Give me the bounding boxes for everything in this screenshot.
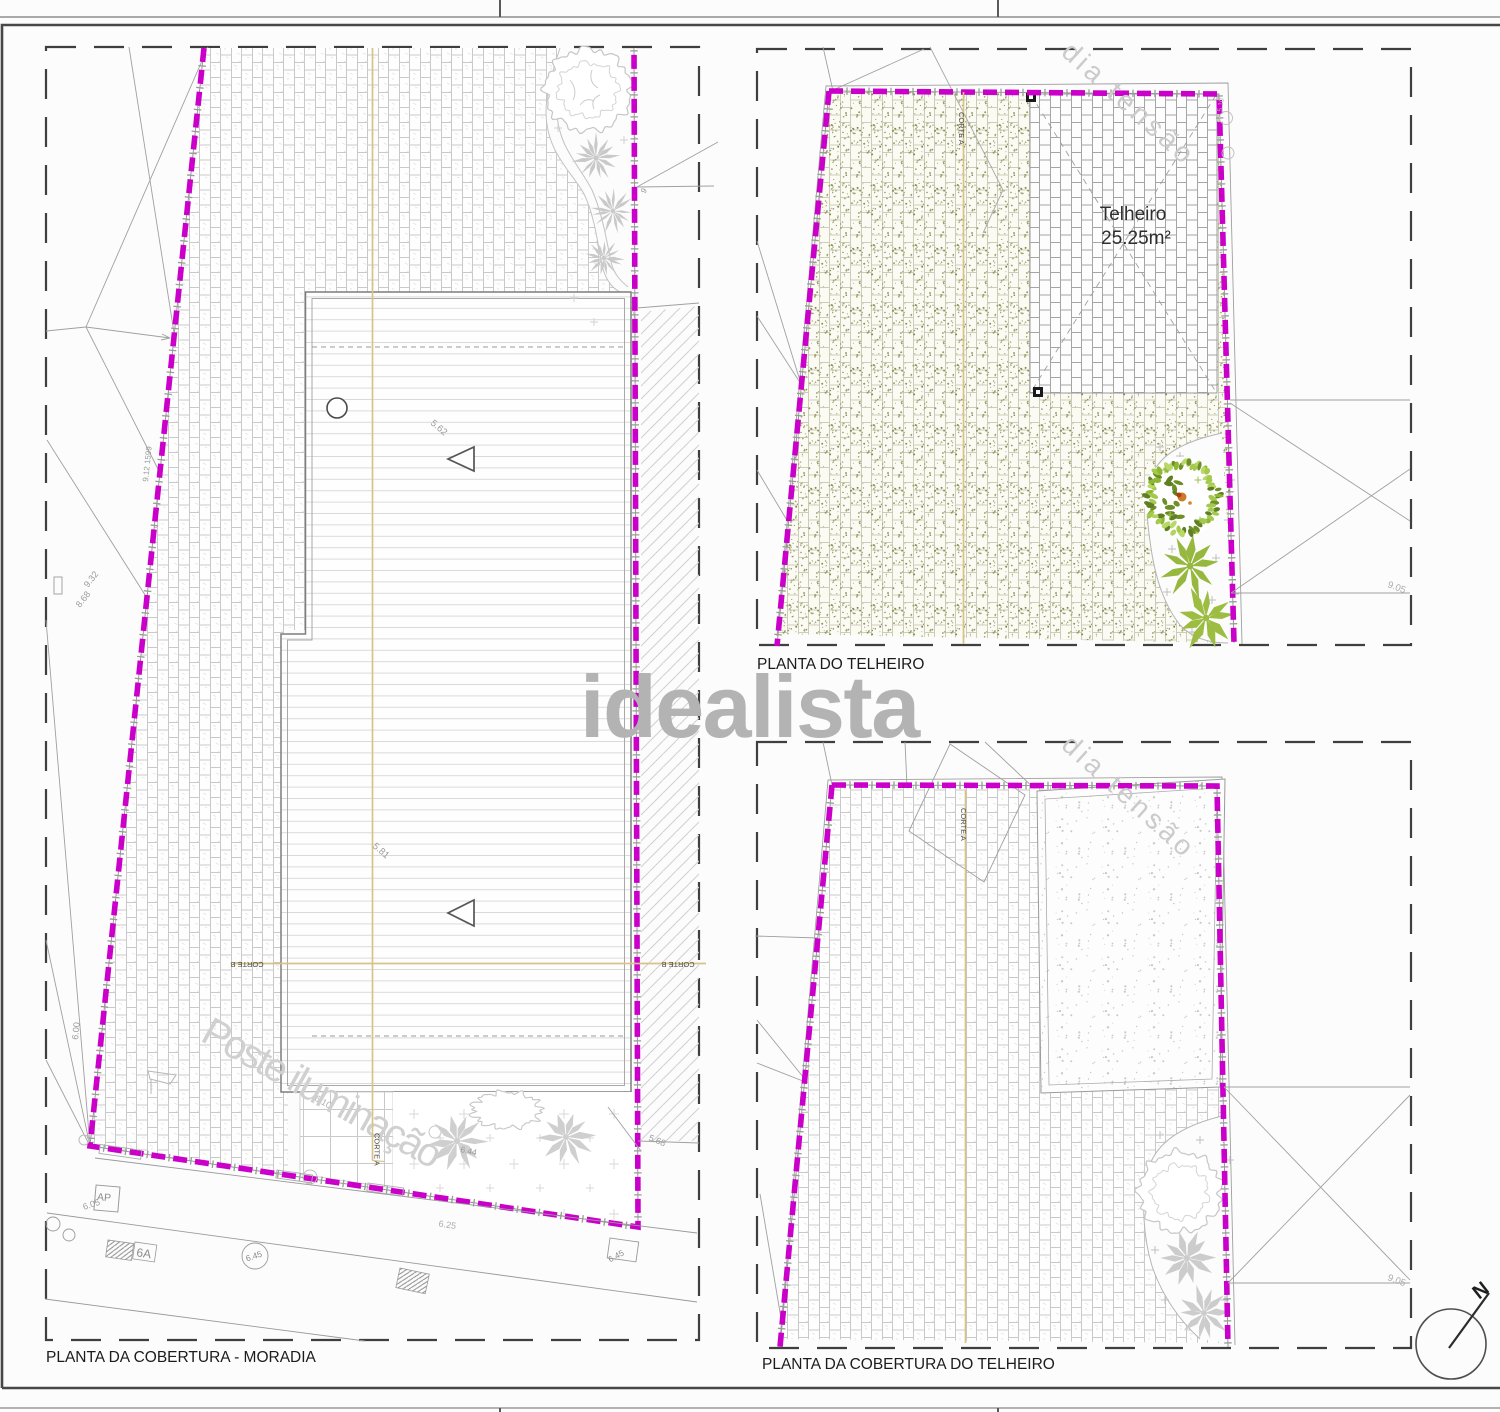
svg-text:idealista: idealista — [580, 657, 921, 756]
svg-text:PLANTA DA COBERTURA - MORADIA: PLANTA DA COBERTURA - MORADIA — [46, 1349, 317, 1366]
svg-text:25.25m²: 25.25m² — [1101, 228, 1171, 249]
svg-text:CORTE A: CORTE A — [959, 808, 968, 841]
svg-text:6.00: 6.00 — [70, 1022, 82, 1040]
svg-text:CORTE B: CORTE B — [661, 960, 694, 969]
svg-text:6A: 6A — [136, 1245, 152, 1261]
svg-text:CORTE A: CORTE A — [957, 112, 966, 145]
svg-text:Telheiro: Telheiro — [1100, 204, 1167, 225]
svg-text:PLANTA DA COBERTURA DO TELHEIR: PLANTA DA COBERTURA DO TELHEIRO — [762, 1356, 1055, 1373]
svg-text:CORTE B: CORTE B — [230, 960, 263, 969]
